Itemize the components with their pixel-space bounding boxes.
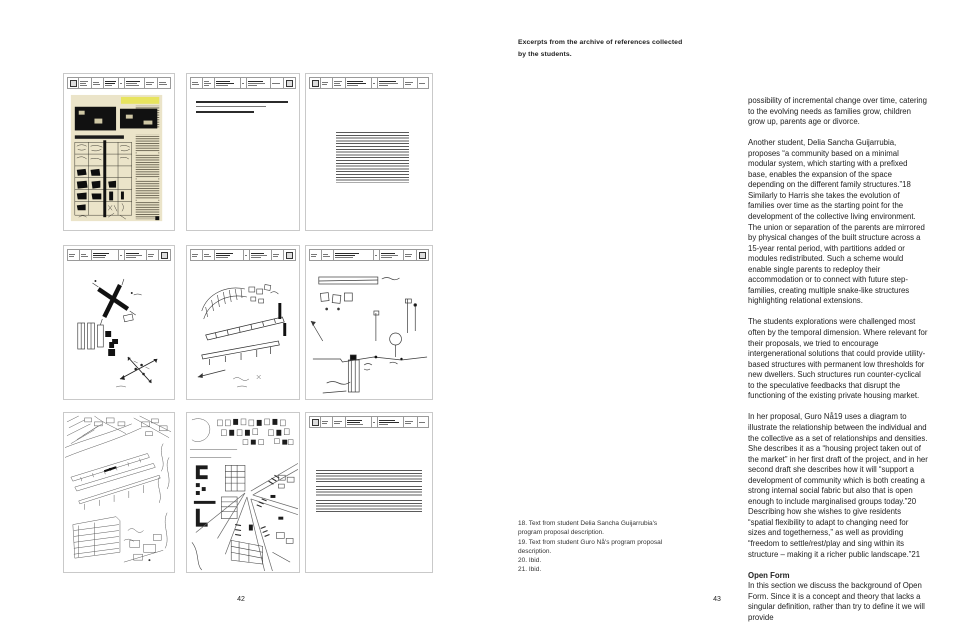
typed-line — [196, 111, 254, 113]
archive-stamp-icon — [417, 250, 428, 260]
archive-card-typed-long — [305, 73, 433, 231]
urban-perspective-drawing — [188, 414, 298, 571]
plan-sketch-drawing — [65, 263, 173, 398]
footnote: 20. Ibid. — [518, 556, 680, 565]
typed-line — [196, 101, 288, 103]
archive-stamp-icon — [68, 78, 79, 88]
archive-card-urban-perspective — [186, 412, 300, 573]
archive-card-magazine-scan — [63, 73, 175, 231]
archive-card-aerial-drawing — [63, 412, 175, 573]
body-paragraph: possibility of incremental change over t… — [748, 96, 928, 128]
archive-card-typed-paragraphs — [305, 412, 433, 573]
section-heading: Open Form — [748, 571, 928, 582]
archive-card-typed-short — [186, 73, 300, 231]
book-spread: Excerpts from the archive of references … — [0, 0, 960, 637]
footnote: 21. Ibid. — [518, 565, 680, 574]
typed-paragraph-block — [336, 132, 409, 183]
aerial-pencil-drawing — [65, 414, 173, 571]
card-header-form — [309, 77, 429, 89]
archive-card-plan-sketch — [63, 245, 175, 400]
perspective-sketch-drawing — [188, 263, 298, 398]
footnote: 19. Text from student Guro Nå's program … — [518, 538, 680, 557]
archive-card-perspective-sketch — [186, 245, 300, 400]
card-header-form — [67, 77, 171, 89]
card-header-form — [190, 77, 296, 89]
typed-paragraph-block — [316, 470, 422, 483]
page-number-right: 43 — [702, 596, 732, 603]
archive-stamp-icon — [284, 250, 295, 260]
card-header-form — [309, 416, 429, 428]
body-text-column: possibility of incremental change over t… — [748, 96, 928, 623]
archive-caption: Excerpts from the archive of references … — [518, 37, 690, 61]
archive-stamp-icon — [159, 250, 170, 260]
card-header-form — [190, 249, 296, 261]
archive-stamp-icon — [284, 78, 295, 88]
body-paragraph: The students explorations were challenge… — [748, 317, 928, 401]
archive-card-section-sketch — [305, 245, 433, 400]
archive-stamp-icon — [310, 417, 321, 427]
typed-paragraph-block — [316, 486, 422, 497]
typed-line — [196, 106, 266, 107]
footnotes: 18. Text from student Delia Sancha Guija… — [518, 519, 680, 575]
body-paragraph: In this section we discuss the backgroun… — [748, 581, 928, 623]
page-number-left: 42 — [226, 596, 256, 603]
typed-paragraph-block — [316, 500, 422, 513]
card-header-form — [309, 249, 429, 261]
body-paragraph: Another student, Delia Sancha Guijarrubi… — [748, 138, 928, 307]
section-sketch-drawing — [307, 263, 431, 398]
card-header-form — [67, 249, 171, 261]
magazine-scan-image — [65, 91, 173, 229]
archive-stamp-icon — [310, 78, 321, 88]
footnote: 18. Text from student Delia Sancha Guija… — [518, 519, 680, 538]
body-paragraph: In her proposal, Guro Nå19 uses a diagra… — [748, 412, 928, 560]
